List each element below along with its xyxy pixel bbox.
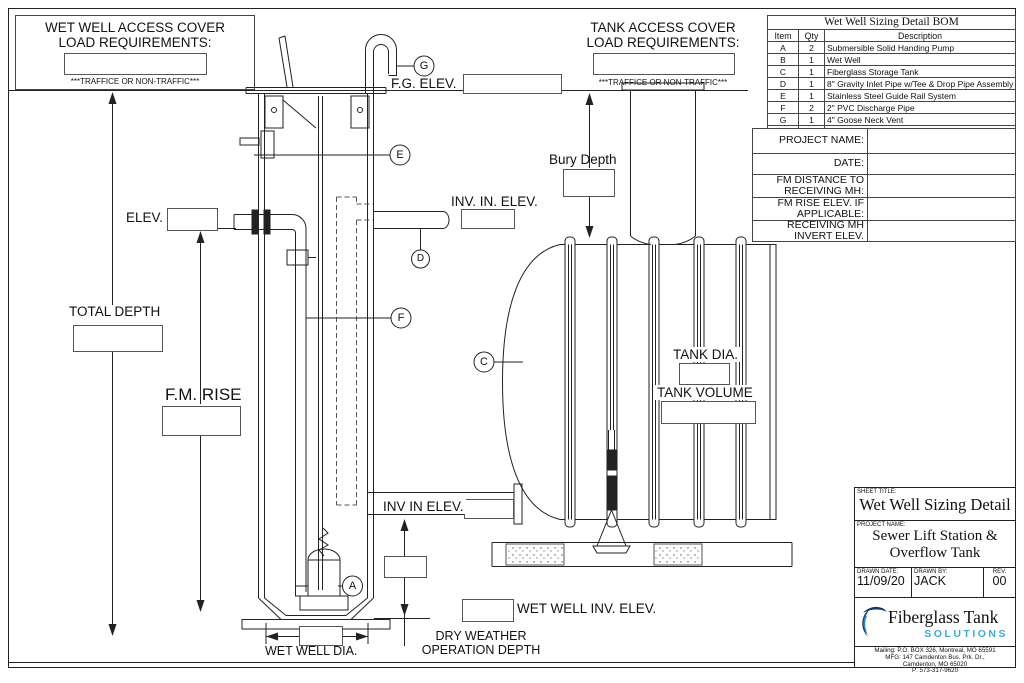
project-info-row: FM DISTANCE TO RECEIVING MH: <box>753 175 1015 198</box>
bom-table: Wet Well Sizing Detail BOM Item Qty Desc… <box>767 15 1016 133</box>
project-info-table: PROJECT NAME: DATE: FM DISTANCE TO RECEI… <box>752 128 1016 242</box>
project-info-label: FM RISE ELEV. IF APPLICABLE: <box>753 198 868 220</box>
bom-cell: B <box>768 54 799 66</box>
rev-cell: REV. 00 <box>984 568 1015 597</box>
bury-depth-label: Bury Depth <box>549 152 617 167</box>
project-info-label: PROJECT NAME: <box>753 129 868 153</box>
project-info-row: DATE: <box>753 154 1015 175</box>
bom-row: A2Submersible Solid Handing Pump <box>768 42 1016 54</box>
address-line: P: 573-317-9620 <box>855 668 1015 675</box>
bom-cell: 2 <box>799 42 825 54</box>
fiberglass-tank-logo-icon <box>858 603 888 641</box>
bom-cell: 1 <box>799 90 825 102</box>
discharge-pipe <box>292 215 306 593</box>
drawn-date-cell: DRAWN DATE: 11/09/20 <box>855 568 912 597</box>
note-title: WET WELL ACCESS COVER <box>16 20 254 35</box>
drawn-date: 11/09/20 <box>855 575 911 589</box>
bom-cell: D <box>768 78 799 90</box>
bom-cell: Submersible Solid Handing Pump <box>825 42 1016 54</box>
title-block: SHEET TITLE: Wet Well Sizing Detail PROJ… <box>854 487 1016 668</box>
bom-cell: 2" PVC Discharge Pipe <box>825 102 1016 114</box>
dry-weather-depth-value-box <box>384 556 427 578</box>
drawn-info-section: DRAWN DATE: 11/09/20 DRAWN BY: JACK REV.… <box>855 568 1015 598</box>
callout-e-guide-rail: E <box>390 145 410 165</box>
wet-well-drawing <box>234 34 522 629</box>
bom-cell: 8" Gravity Inlet Pipe w/Tee & Drop Pipe … <box>825 78 1016 90</box>
fm-rise-value-box <box>162 406 241 436</box>
traffic-note: ***TRAFFICE OR NON-TRAFFIC*** <box>575 78 751 87</box>
load-requirement-value-box <box>593 53 735 75</box>
float-switch <box>240 138 259 145</box>
bom-row: B1Wet Well <box>768 54 1016 66</box>
project-name-line1: Sewer Lift Station & <box>855 528 1015 545</box>
tank-cover-note: TANK ACCESS COVER LOAD REQUIREMENTS: <box>575 20 751 50</box>
bom-cell: 1 <box>799 78 825 90</box>
project-name-line2: Overflow Tank <box>855 545 1015 562</box>
bom-row: E1Stainless Steel Guide Rail System <box>768 90 1016 102</box>
bom-col-item: Item <box>768 30 799 42</box>
bom-cell: 1 <box>799 114 825 126</box>
rev-value: 00 <box>984 575 1015 589</box>
note-title: LOAD REQUIREMENTS: <box>16 35 254 50</box>
check-valve <box>287 250 308 265</box>
wet-well-dia-label: WET WELL DIA. <box>265 644 357 658</box>
drawn-by: JACK <box>912 575 983 589</box>
bom-cell: E <box>768 90 799 102</box>
project-info-label: DATE: <box>753 154 868 174</box>
bom-cell: Fiberglass Storage Tank <box>825 66 1016 78</box>
sheet-title: Wet Well Sizing Detail <box>855 495 1015 516</box>
total-depth-label: TOTAL DEPTH <box>69 304 160 319</box>
fm-rise-label: F.M. RISE <box>165 385 242 405</box>
callout-g-vent: G <box>414 56 434 76</box>
bom-cell: G <box>768 114 799 126</box>
bom-cell: A <box>768 42 799 54</box>
bom-row: F22" PVC Discharge Pipe <box>768 102 1016 114</box>
project-info-label: RECEIVING MH INVERT ELEV. <box>753 221 868 241</box>
tank-manway-riser <box>622 83 704 245</box>
bom-cell: 1 <box>799 54 825 66</box>
bom-cell: 2 <box>799 102 825 114</box>
callout-d-inlet-pipe: D <box>411 249 431 269</box>
concrete-deadman <box>492 543 792 567</box>
elev-value-box <box>167 208 218 231</box>
bom-cell: Stainless Steel Guide Rail System <box>825 90 1016 102</box>
project-info-value <box>868 154 1015 174</box>
project-info-row: FM RISE ELEV. IF APPLICABLE: <box>753 198 1015 221</box>
note-title: TANK ACCESS COVER <box>575 20 751 35</box>
drawing-sheet: WET WELL ACCESS COVER LOAD REQUIREMENTS:… <box>0 0 1024 683</box>
project-info-row: PROJECT NAME: <box>753 129 1015 154</box>
project-name-label: PROJECT NAME: <box>855 521 1015 528</box>
bom-row: G14" Goose Neck Vent <box>768 114 1016 126</box>
inv-in-elev-lower-label: INV IN ELEV. <box>381 499 466 514</box>
project-info-value <box>868 129 1015 153</box>
guide-rails <box>319 96 323 590</box>
wet-well-inv-elev-value-box <box>462 599 514 622</box>
company-logo: Fiberglass Tank SOLUTIONS <box>855 598 1015 647</box>
logo-subtitle: SOLUTIONS <box>924 628 1008 640</box>
bom-cell: 4" Goose Neck Vent <box>825 114 1016 126</box>
inv-in-elev-label: INV. IN. ELEV. <box>451 194 538 209</box>
bom-row: D18" Gravity Inlet Pipe w/Tee & Drop Pip… <box>768 78 1016 90</box>
fg-elev-label: F.G. ELEV. <box>391 76 457 91</box>
tank-drawing <box>492 83 792 567</box>
project-info-label: FM DISTANCE TO RECEIVING MH: <box>753 175 868 197</box>
project-info-value <box>868 198 1015 220</box>
wet-well-cover-note: WET WELL ACCESS COVER LOAD REQUIREMENTS:… <box>15 15 255 90</box>
sheet-title-label: SHEET TITLE: <box>855 488 1015 495</box>
bom-col-desc: Description <box>825 30 1016 42</box>
fg-elev-value-box <box>463 74 562 94</box>
sheet-title-section: SHEET TITLE: Wet Well Sizing Detail <box>855 488 1015 521</box>
open-hatch-lid <box>279 36 293 87</box>
bom-header-row: Item Qty Description <box>768 30 1016 42</box>
bury-depth-value-box <box>563 169 615 197</box>
bom-cell: F <box>768 102 799 114</box>
inv-in-elev-lower-value-box <box>464 499 514 519</box>
elev-label: ELEV. <box>126 210 163 225</box>
dry-weather-line2: OPERATION DEPTH <box>420 643 542 657</box>
inv-in-elev-value-box <box>461 209 515 229</box>
wet-well-inv-elev-label: WET WELL INV. ELEV. <box>515 601 658 616</box>
bom-col-qty: Qty <box>799 30 825 42</box>
company-address: Mailing: P.O. BOX 326, Montreal, MO 6559… <box>855 647 1015 675</box>
project-info-row: RECEIVING MH INVERT ELEV. <box>753 221 1015 241</box>
load-requirement-value-box <box>64 53 207 75</box>
bom-row: C1Fiberglass Storage Tank <box>768 66 1016 78</box>
callout-f-discharge-pipe: F <box>391 308 411 328</box>
submersible-pump <box>296 528 349 610</box>
note-title: LOAD REQUIREMENTS: <box>575 35 751 50</box>
bom-cell: Wet Well <box>825 54 1016 66</box>
callout-a-pump: A <box>343 576 363 596</box>
callout-c-tank: C <box>474 352 494 372</box>
tank-dia-label: TANK DIA. <box>671 347 740 362</box>
project-info-value <box>868 175 1015 197</box>
dry-weather-line1: DRY WEATHER <box>420 629 542 643</box>
wet-well-dia-value-box <box>299 626 343 646</box>
tank-dia-value-box <box>679 363 730 385</box>
project-info-value <box>868 221 1015 241</box>
bom-title: Wet Well Sizing Detail BOM <box>767 15 1016 29</box>
logo-name: Fiberglass Tank <box>888 607 998 628</box>
tank-volume-value-box <box>661 401 756 424</box>
bom-cell: C <box>768 66 799 78</box>
project-name-section: PROJECT NAME: Sewer Lift Station & Overf… <box>855 521 1015 568</box>
total-depth-value-box <box>73 325 163 352</box>
tank-volume-label: TANK VOLUME <box>655 385 755 400</box>
dry-weather-label: DRY WEATHER OPERATION DEPTH <box>420 629 542 658</box>
inlet-pipe <box>374 212 449 229</box>
traffic-note: ***TRAFFICE OR NON-TRAFFIC*** <box>16 77 254 86</box>
drawn-by-cell: DRAWN BY: JACK <box>912 568 984 597</box>
bom-cell: 1 <box>799 66 825 78</box>
